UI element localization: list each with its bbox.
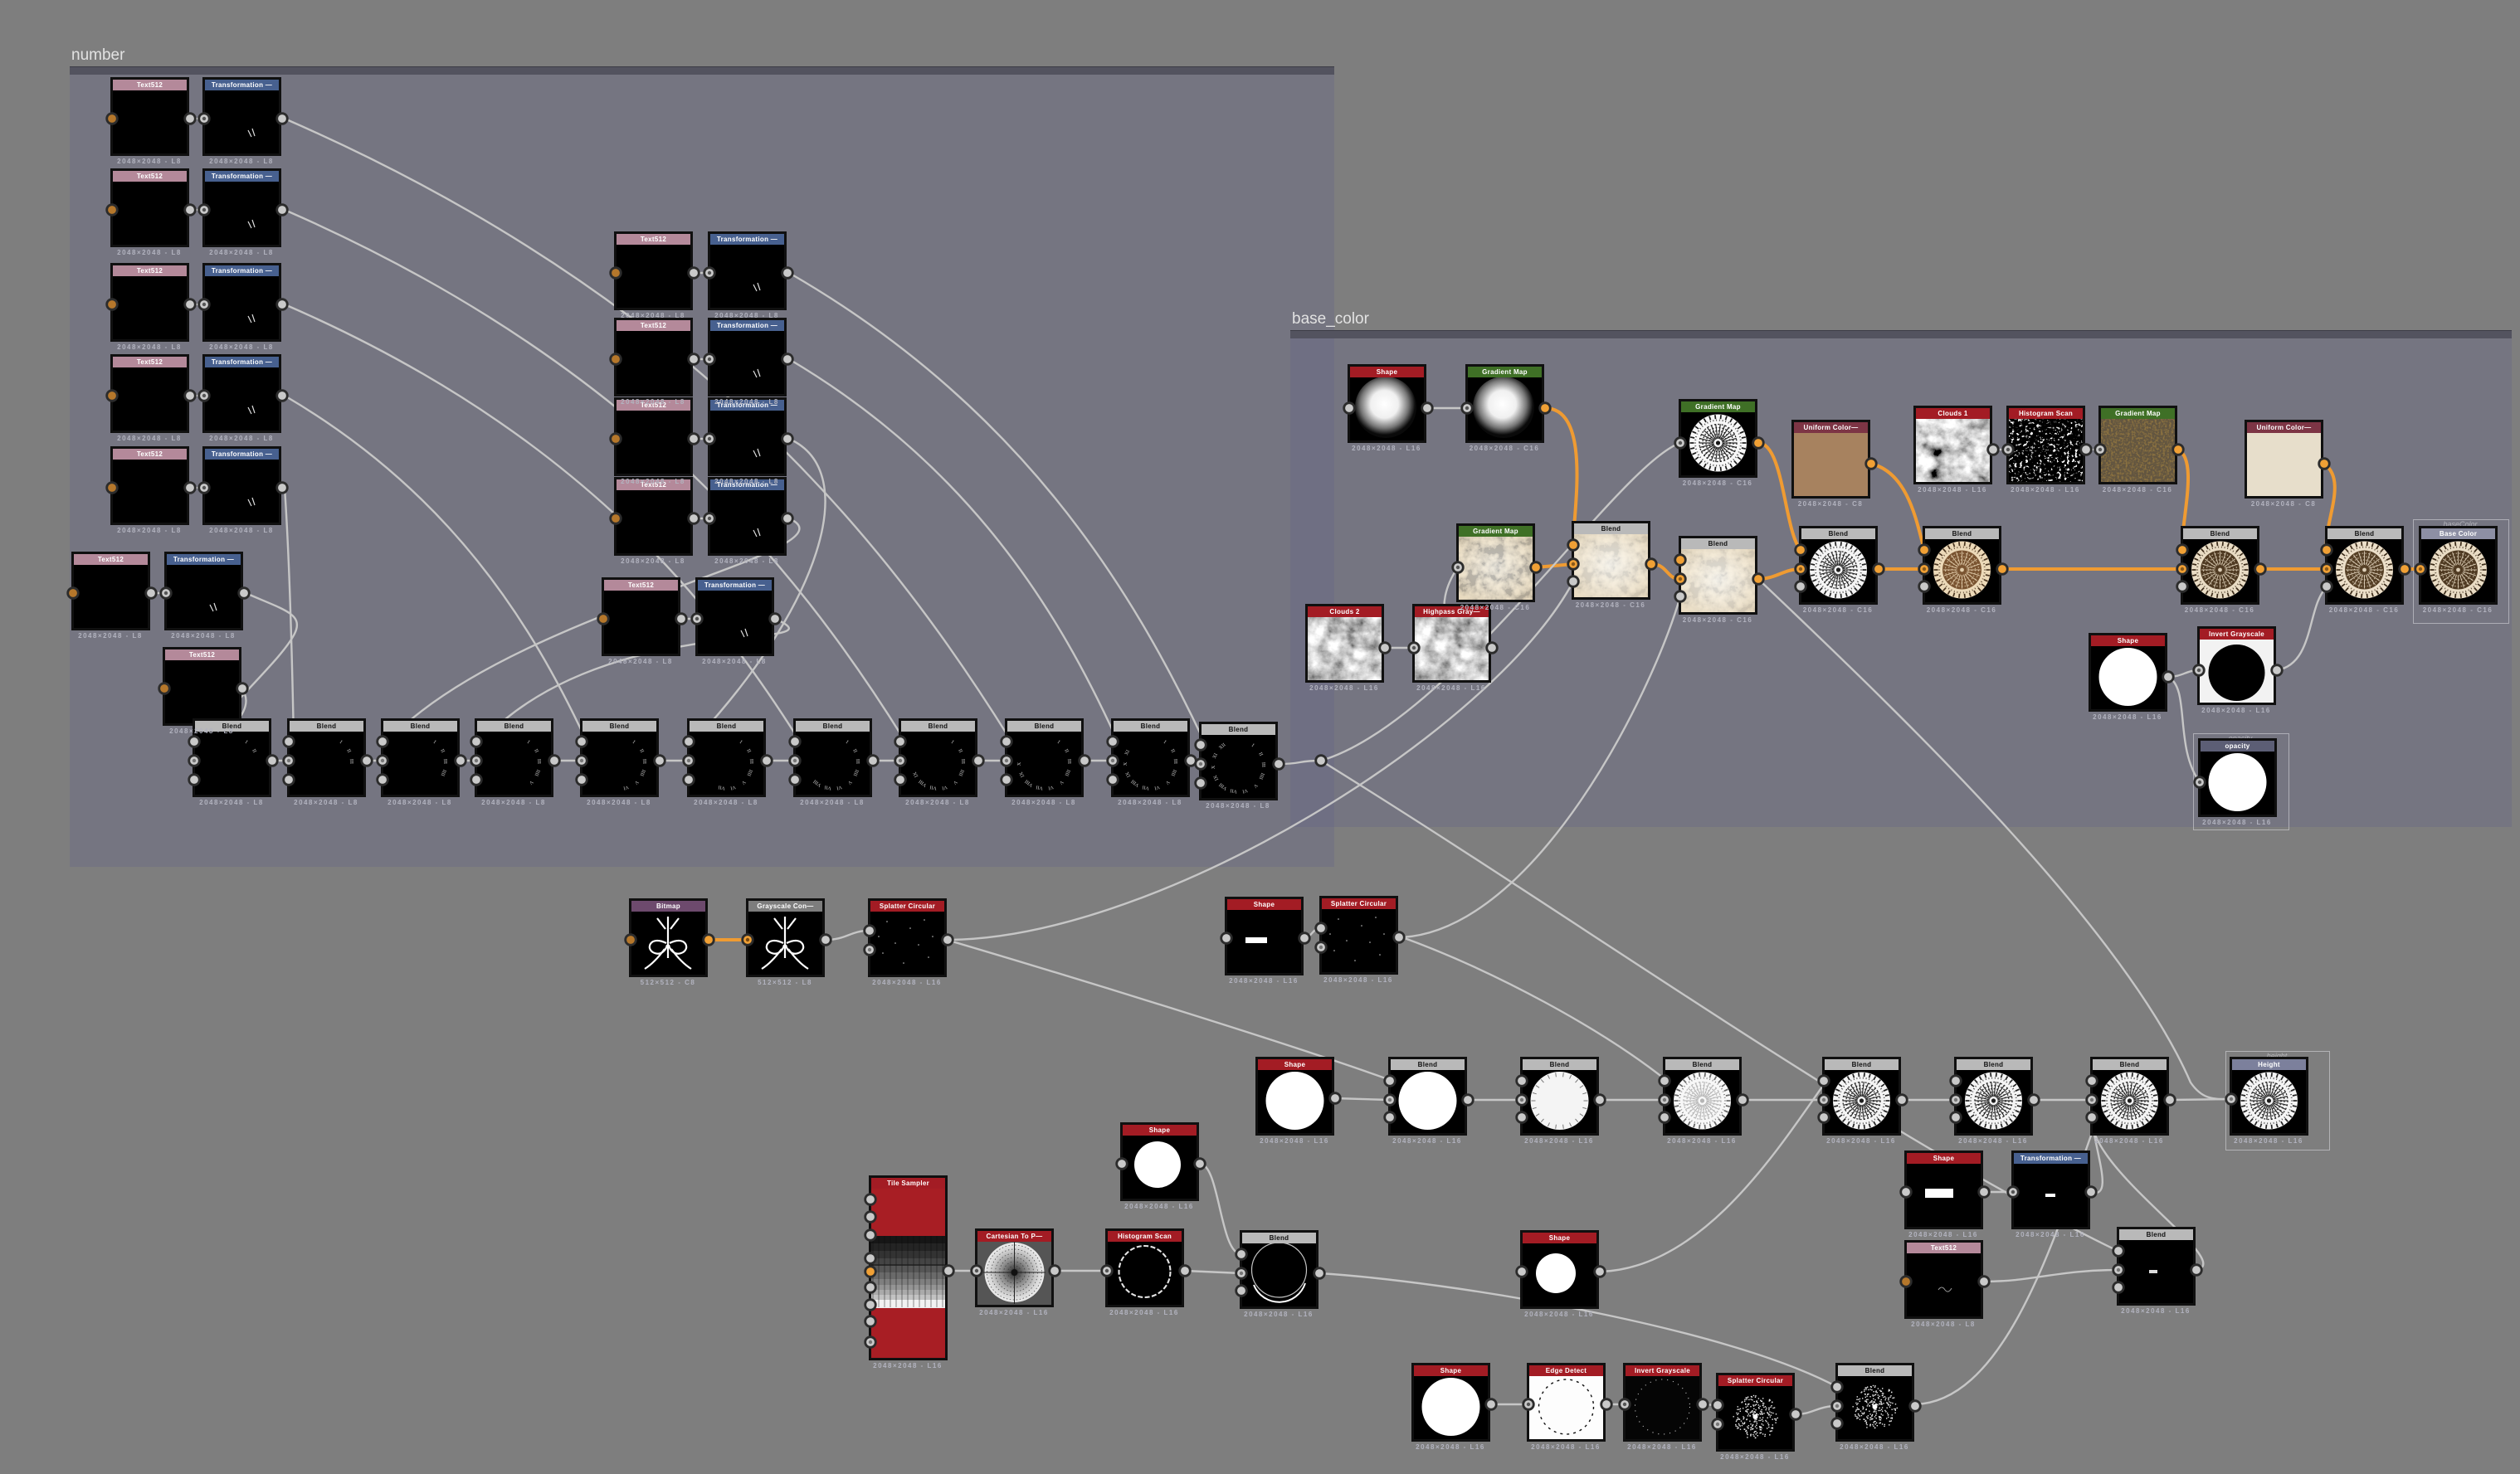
svg-text:III: III — [748, 759, 753, 764]
svg-text:III: III — [442, 759, 447, 764]
svg-text:X: X — [1017, 761, 1022, 766]
svg-text:III: III — [1066, 759, 1071, 764]
svg-text:III: III — [536, 759, 541, 764]
svg-text:III: III — [641, 759, 646, 764]
svg-text:III: III — [855, 759, 860, 764]
svg-text:III: III — [1260, 762, 1265, 767]
svg-text:III: III — [1172, 759, 1177, 764]
svg-text:III: III — [349, 759, 353, 764]
svg-text:III: III — [960, 759, 965, 764]
svg-text:X: X — [1124, 761, 1128, 766]
svg-text:X: X — [1211, 765, 1216, 769]
